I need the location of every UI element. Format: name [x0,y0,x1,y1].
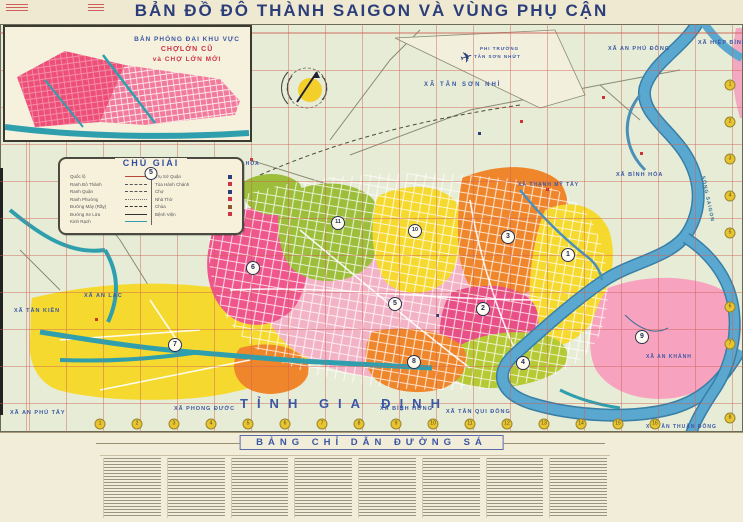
airport: ✈ [395,30,585,108]
index-rule [96,443,244,444]
zone-pink-ne [733,28,743,118]
margin-note-red [88,4,104,13]
legend-sample-district-badge: 5 [145,167,158,180]
legend-item-label: Ranh Quận [70,189,93,194]
legend-item-label: Ranh Phường [70,197,98,202]
legend-line-sample [125,176,147,177]
compass-rose [282,68,327,108]
legend-row: Tòa Hành Chánh [155,181,232,189]
legend-item-label: Ranh Đô Thành [70,182,102,187]
legend-item-label: Đường Xe Lửa [70,212,100,217]
legend-row: Chợ [155,188,232,196]
legend-row: Nhà Thờ [155,196,232,204]
street-index-column [549,458,607,518]
legend-item-label: Nhà Thờ [155,197,173,202]
legend-item-label: Bệnh Viện [155,212,176,217]
legend-item-label: Chợ [155,189,164,194]
legend-row: Trụ Sở Quận [155,173,232,181]
legend-row: Quốc lộ [70,173,147,181]
legend-row: Ranh Đô Thành [70,181,147,189]
legend-line-sample [125,184,147,185]
legend-symbol [228,190,232,194]
legend-line-sample [125,191,147,192]
street-index-column [422,458,480,518]
legend-row: Đường Xe Lửa [70,211,147,219]
street-index-column [103,458,161,518]
legend-box: CHÚ GIẢI 5 Quốc lộRanh Đô ThànhRanh Quận… [58,157,244,235]
legend-line-sample [125,206,147,207]
legend-symbol [228,205,232,209]
title-strip: BẢN ĐỒ ĐÔ THÀNH SAIGON VÀ VÙNG PHỤ CẬN [0,0,743,24]
legend-row: Ranh Quận [70,188,147,196]
margin-note-red [6,4,28,13]
legend-symbol [228,182,232,186]
legend-left-column: Quốc lộRanh Đô ThànhRanh QuậnRanh Phường… [66,173,151,229]
legend-row: Bệnh Viện [155,211,232,219]
street-index-column [486,458,544,518]
legend-row: Đường Máy (Rầy) [70,203,147,211]
saigon-map-sheet: BẢN ĐỒ ĐÔ THÀNH SAIGON VÀ VÙNG PHỤ CẬN [0,0,743,522]
inset-title: BẢN PHÓNG ĐẠI KHU VỰC CHỢLỚN CŨ và CHỢ L… [134,35,240,65]
legend-item-label: Chùa [155,204,166,209]
legend-row: Kinh Rạch [70,218,147,226]
street-index-panel: BẢNG CHỈ DẪN ĐƯỜNG SÁ ĐƯỜNG PHỐ MỚI ĐỔI … [0,432,743,522]
legend-item-label: Quốc lộ [70,174,86,179]
inset-title-line3: và CHỢ LỚN MỚI [134,55,240,65]
street-index-column [167,458,225,518]
legend-item-label: Kinh Rạch [70,219,91,224]
legend-symbol [228,197,232,201]
legend-symbol [228,175,232,179]
legend-row: Ranh Phường [70,196,147,204]
legend-item-label: Đường Máy (Rầy) [70,204,106,209]
legend-symbol [228,212,232,216]
street-index-column [294,458,352,518]
legend-line-sample [125,199,147,200]
legend-row: Chùa [155,203,232,211]
inset-title-line2: CHỢLỚN CŨ [134,45,240,56]
legend-line-sample [125,214,147,215]
street-index-column [231,458,289,518]
street-index-column [358,458,416,518]
inset-map-cholon: BẢN PHÓNG ĐẠI KHU VỰC CHỢLỚN CŨ và CHỢ L… [3,25,252,142]
street-index-columns [100,455,610,520]
legend-item-label: Tòa Hành Chánh [155,182,189,187]
inset-river [5,127,249,136]
legend-right-column: Trụ Sở QuậnTòa Hành ChánhChợNhà ThờChùaB… [151,173,236,229]
legend-item-label: Trụ Sở Quận [155,174,181,179]
legend-line-sample [125,221,147,222]
street-index-header: BẢNG CHỈ DẪN ĐƯỜNG SÁ [239,435,504,450]
map-title: BẢN ĐỒ ĐÔ THÀNH SAIGON VÀ VÙNG PHỤ CẬN [0,1,743,21]
inset-title-line1: BẢN PHÓNG ĐẠI KHU VỰC [134,35,240,45]
